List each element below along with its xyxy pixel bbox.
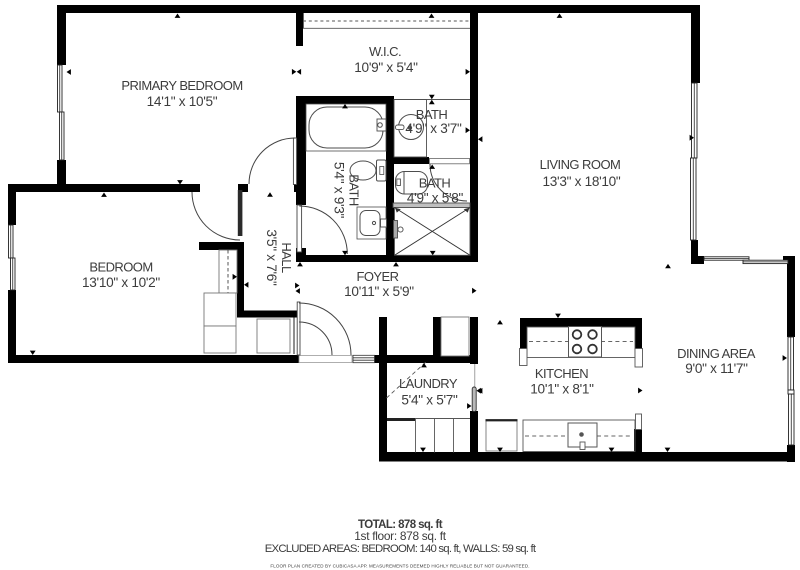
- svg-text:3'5" x 7'6": 3'5" x 7'6": [264, 229, 279, 286]
- svg-text:13'3" x 18'10": 13'3" x 18'10": [543, 174, 621, 189]
- svg-text:5'4" x 5'7": 5'4" x 5'7": [401, 393, 458, 408]
- svg-text:FLOOR PLAN CREATED BY CUBICASA: FLOOR PLAN CREATED BY CUBICASA APP. MEAS…: [270, 564, 529, 569]
- svg-text:PRIMARY BEDROOM: PRIMARY BEDROOM: [121, 78, 242, 93]
- svg-text:KITCHEN: KITCHEN: [535, 366, 588, 381]
- svg-text:LAUNDRY: LAUNDRY: [399, 376, 458, 391]
- svg-text:FOYER: FOYER: [356, 269, 398, 284]
- svg-text:9'0" x 11'7": 9'0" x 11'7": [685, 361, 748, 376]
- svg-text:DINING AREA: DINING AREA: [677, 346, 756, 361]
- svg-text:5'4" x 9'3": 5'4" x 9'3": [332, 162, 347, 219]
- svg-text:BEDROOM: BEDROOM: [89, 260, 152, 275]
- svg-text:EXCLUDED AREAS: BEDROOM: 140 s: EXCLUDED AREAS: BEDROOM: 140 sq. ft, WAL…: [265, 543, 537, 555]
- svg-text:LIVING ROOM: LIVING ROOM: [540, 157, 621, 172]
- svg-text:10'11" x 5'9": 10'11" x 5'9": [344, 284, 414, 299]
- svg-text:13'10" x 10'2": 13'10" x 10'2": [82, 275, 160, 290]
- svg-text:W.I.C.: W.I.C.: [369, 44, 401, 59]
- svg-text:10'1" x 8'1": 10'1" x 8'1": [530, 382, 594, 397]
- svg-text:14'1" x 10'5": 14'1" x 10'5": [147, 94, 218, 109]
- svg-text:4'9" x 3'7": 4'9" x 3'7": [405, 121, 462, 136]
- svg-text:HALL: HALL: [279, 242, 294, 273]
- svg-text:BATH: BATH: [347, 174, 362, 206]
- svg-text:4'9" x 5'8": 4'9" x 5'8": [407, 191, 464, 206]
- svg-text:BATH: BATH: [419, 176, 451, 191]
- svg-text:BATH: BATH: [416, 107, 448, 122]
- svg-text:10'9" x 5'4": 10'9" x 5'4": [354, 60, 418, 75]
- svg-text:1st floor: 878 sq. ft: 1st floor: 878 sq. ft: [354, 529, 447, 543]
